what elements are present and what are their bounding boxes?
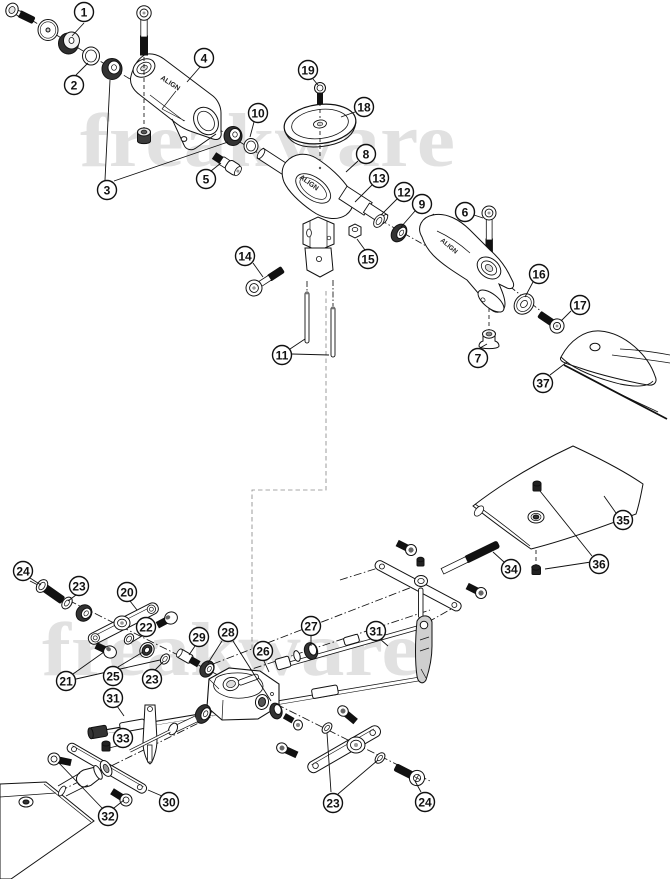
svg-text:14: 14 bbox=[238, 250, 252, 264]
svg-text:12: 12 bbox=[397, 186, 411, 200]
svg-text:8: 8 bbox=[363, 148, 370, 162]
svg-text:9: 9 bbox=[419, 198, 426, 212]
svg-text:24: 24 bbox=[16, 565, 30, 579]
svg-text:22: 22 bbox=[139, 621, 153, 635]
svg-text:1: 1 bbox=[81, 6, 88, 20]
svg-text:31: 31 bbox=[106, 692, 120, 706]
svg-text:15: 15 bbox=[361, 253, 375, 267]
svg-text:11: 11 bbox=[276, 349, 289, 363]
svg-text:23: 23 bbox=[72, 580, 86, 594]
svg-text:7: 7 bbox=[475, 352, 482, 366]
svg-text:17: 17 bbox=[573, 299, 587, 313]
svg-text:10: 10 bbox=[251, 107, 265, 121]
svg-text:32: 32 bbox=[101, 810, 115, 824]
svg-text:20: 20 bbox=[120, 586, 134, 600]
svg-text:24: 24 bbox=[418, 796, 432, 810]
svg-text:34: 34 bbox=[504, 563, 518, 577]
svg-text:37: 37 bbox=[536, 377, 550, 391]
svg-text:31: 31 bbox=[369, 625, 383, 639]
svg-text:36: 36 bbox=[592, 558, 606, 572]
svg-text:6: 6 bbox=[462, 206, 469, 220]
svg-text:5: 5 bbox=[203, 173, 210, 187]
svg-text:30: 30 bbox=[162, 796, 176, 810]
svg-text:35: 35 bbox=[616, 514, 630, 528]
svg-text:19: 19 bbox=[301, 64, 315, 78]
svg-text:2: 2 bbox=[71, 79, 78, 93]
svg-text:25: 25 bbox=[106, 670, 120, 684]
svg-text:13: 13 bbox=[372, 172, 386, 186]
svg-text:21: 21 bbox=[59, 675, 73, 689]
svg-text:29: 29 bbox=[192, 631, 206, 645]
svg-text:4: 4 bbox=[201, 52, 208, 66]
svg-text:23: 23 bbox=[326, 797, 340, 811]
svg-text:18: 18 bbox=[357, 101, 371, 115]
svg-text:26: 26 bbox=[256, 645, 270, 659]
svg-text:23: 23 bbox=[145, 673, 159, 687]
svg-text:28: 28 bbox=[221, 626, 235, 640]
svg-text:16: 16 bbox=[532, 268, 546, 282]
svg-text:33: 33 bbox=[116, 732, 130, 746]
svg-text:27: 27 bbox=[304, 620, 318, 634]
svg-text:3: 3 bbox=[104, 184, 111, 198]
